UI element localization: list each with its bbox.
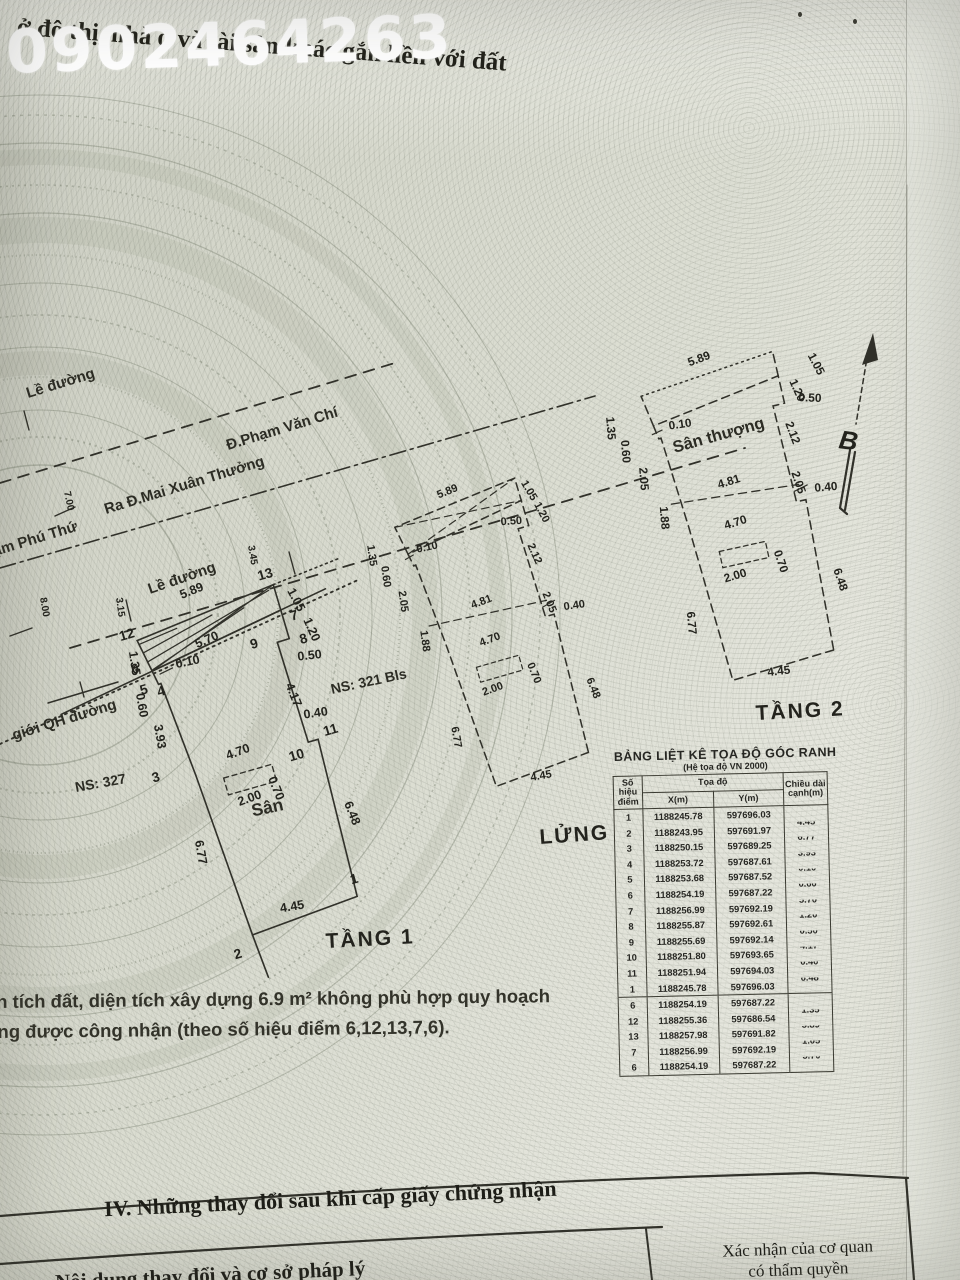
cell-y: 597696.03	[713, 806, 784, 824]
parcel-outline-tang2	[649, 376, 841, 685]
dim-label: 0.40	[563, 598, 586, 613]
cell-x: 1188251.94	[646, 964, 717, 981]
cell-length: 1.35	[788, 1009, 832, 1026]
terrace-dotted-edge	[638, 351, 776, 396]
dim-label: 2.12	[782, 419, 803, 446]
cell-point: 6	[620, 1060, 649, 1077]
north-arrow-label: B	[837, 424, 860, 456]
point-label: 11	[321, 720, 339, 739]
inner-dimension-line	[429, 593, 546, 633]
dim-label: 3.15	[113, 597, 127, 618]
change-content-label: Nội dung thay đổi và cơ sở pháp lý	[55, 1256, 366, 1280]
sliver-outline	[391, 478, 527, 556]
dong-son-drum-pattern	[0, 0, 960, 1280]
dim-label: 0.60	[618, 440, 634, 464]
road-boundary-through-6-7	[48, 589, 339, 715]
cell-y: 597694.03	[717, 962, 788, 979]
north-arrow-tail	[840, 450, 855, 514]
cell-y: 597691.97	[714, 822, 785, 839]
cell-point: 3	[615, 841, 644, 857]
cell-length: 0.10	[785, 868, 829, 885]
dimension-tick	[10, 628, 32, 636]
dim-label: 0.10	[174, 652, 201, 671]
point-label: 12	[117, 625, 136, 644]
construction-note: ện tích đất, diện tích xây dựng 6.9 m² k…	[0, 981, 586, 1046]
skylight-rect	[224, 764, 277, 795]
parcel-outline-lung	[402, 500, 595, 792]
dim-label: 1.20	[786, 377, 808, 404]
point-label: 5	[138, 681, 150, 698]
cell-x: 1188255.87	[645, 917, 716, 934]
cell-y: 597696.03	[717, 978, 788, 996]
cell-point: 5	[615, 872, 644, 888]
cell-length: 6.48	[788, 977, 832, 994]
cell-point: 7	[616, 903, 645, 919]
cell-length: 5.70	[786, 899, 830, 916]
street-edge-line-top	[0, 362, 398, 483]
dim-label: 4.45	[279, 897, 305, 915]
point-label: 4	[155, 683, 167, 700]
dim-label: 2.00	[236, 787, 264, 808]
page-fold-edge	[906, 0, 960, 1280]
certificate-photo: 13 12 6 5 4 3 2 1 7 8 9 10 11 5.89 5.70 …	[0, 0, 960, 1280]
skylight-rect	[476, 655, 523, 682]
boundary-label: giới QH đường	[10, 696, 118, 744]
street-label: Ra Đ.Mai Xuân Thưởng	[102, 453, 266, 518]
cell-length: 1.05	[789, 1040, 833, 1057]
cell-x: 1188256.99	[648, 1043, 719, 1060]
dimension-tick	[55, 507, 75, 516]
cell-x: 1188254.19	[649, 1058, 720, 1076]
dim-label: 4.45	[767, 663, 792, 680]
dimension-tick	[80, 682, 84, 697]
note-line-1: ện tích đất, diện tích xây dựng 6.9 m² k…	[0, 981, 586, 1017]
cell-y: 597692.19	[715, 900, 786, 917]
cell-x: 1188250.15	[644, 839, 715, 856]
cell-length	[788, 993, 832, 1010]
dim-label: 1.20	[300, 616, 323, 644]
dimension-tick	[24, 411, 29, 430]
dim-label: 5.89	[686, 348, 713, 369]
cell-point: 12	[618, 1013, 647, 1029]
dim-label: 0.70	[771, 548, 792, 575]
terrace-label: Sân thượng	[670, 413, 766, 457]
cell-y: 597692.19	[719, 1041, 790, 1058]
cell-point: 9	[617, 934, 646, 950]
cell-point: 1	[614, 809, 643, 826]
dim-label: 6.77	[192, 839, 210, 865]
parcel-number-label: NS: 321 Bls	[329, 665, 408, 697]
cell-length	[784, 805, 828, 822]
street-edge-line-lower	[70, 448, 745, 648]
dim-label: 1.35	[603, 416, 619, 440]
leader-arrow	[405, 521, 556, 640]
cell-length: 0.60	[786, 883, 830, 900]
dim-label: 1.05	[805, 350, 828, 377]
dim-label: 4.17	[283, 681, 305, 709]
cell-x: 1188245.78	[647, 979, 718, 997]
dim-label: 1.20	[531, 500, 552, 525]
dim-label: 1.05	[518, 478, 539, 503]
dim-label: 4.70	[478, 630, 502, 649]
cell-x: 1188254.19	[647, 995, 718, 1013]
dim-label: 1.88	[417, 630, 432, 653]
dim-label: 2.05	[788, 469, 809, 496]
dim-label: 4.81	[716, 471, 743, 491]
cell-length: 1.20	[786, 914, 830, 931]
cell-length: 5.70	[790, 1056, 834, 1073]
cell-length: 5.89	[789, 1025, 833, 1042]
dim-label: 2.05	[539, 590, 558, 614]
guilloche-texture	[0, 0, 960, 1280]
cell-length: 6.77	[785, 836, 829, 853]
dim-label: 5.70	[193, 628, 221, 651]
point-label: 7	[288, 607, 300, 624]
guilloche-texture-2	[0, 0, 960, 1280]
cell-y: 597692.61	[716, 915, 787, 932]
street-label: Đ.Phạm Văn Chí	[224, 403, 341, 453]
col-header-length: Chiều dài cạnh(m)	[783, 772, 828, 806]
cell-y: 597687.22	[715, 884, 786, 901]
parcel-number-label: NS: 327	[74, 770, 128, 795]
cell-point: 11	[617, 965, 646, 981]
planning-boundary-line	[0, 580, 358, 744]
table-row: 61188254.19597687.225.70	[620, 1056, 834, 1077]
leader-arrow	[652, 402, 808, 519]
section4-heading: IV. Những thay đổi sau khi cấp giấy chứn…	[104, 1176, 557, 1223]
dim-label: 2.05	[396, 590, 411, 613]
dim-label: 1.05	[284, 586, 308, 614]
cell-y: 597687.22	[719, 1057, 790, 1075]
dim-label: 0.40	[303, 704, 329, 721]
cell-point: 1	[618, 981, 647, 998]
ink-speck	[798, 12, 802, 17]
cell-x: 1188255.69	[646, 933, 717, 950]
cell-length: 4.45	[784, 821, 828, 838]
dim-label: 6.48	[830, 566, 851, 593]
note-line-2: ông được công nhận (theo số hiệu điểm 6,…	[0, 1010, 586, 1046]
cell-y: 597687.52	[715, 869, 786, 886]
dim-label: 2.05	[636, 467, 652, 491]
cell-y: 597691.82	[718, 1026, 789, 1043]
yard-label: Sân	[250, 794, 286, 820]
point-label: 13	[256, 565, 275, 584]
plan-title-tang1: TẦNG 1	[325, 925, 415, 953]
cell-point: 10	[617, 950, 646, 966]
cell-length: 0.40	[787, 961, 831, 978]
dim-label: 0.70	[524, 661, 543, 685]
point-label: 3	[150, 769, 162, 786]
phone-number-watermark: 0902464263	[5, 2, 455, 88]
point-label: 1	[348, 871, 360, 888]
dim-label: 0.40	[814, 479, 838, 495]
hatch-lines	[134, 585, 287, 673]
cell-x: 1188245.78	[643, 807, 714, 825]
dim-label: 0.50	[297, 647, 323, 663]
boundary-segment	[48, 682, 118, 703]
photo-vignette	[0, 0, 960, 1280]
street-label: Lề đường	[24, 365, 97, 402]
dimension-tick	[126, 600, 131, 621]
dim-label: 2.00	[722, 565, 748, 585]
dim-label: 0.70	[265, 774, 287, 802]
cell-x: 1188253.72	[644, 855, 715, 872]
point-label: 10	[287, 746, 306, 765]
cadastral-drawing: 13 12 6 5 4 3 2 1 7 8 9 10 11 5.89 5.70 …	[0, 0, 960, 1280]
dim-label: 7.00	[61, 490, 76, 512]
cell-x: 1188243.95	[643, 823, 714, 840]
cross-diagonals	[391, 478, 527, 556]
dim-label: 5.89	[178, 580, 206, 602]
skylight-rect	[719, 541, 769, 567]
dim-label: 4.45	[530, 768, 553, 784]
dim-label: 0.10	[668, 415, 693, 432]
cell-x: 1188257.98	[648, 1027, 719, 1044]
dim-label: 1.35	[126, 650, 143, 676]
cell-y: 597692.14	[716, 931, 787, 948]
cell-y: 597686.54	[718, 1010, 789, 1027]
dim-label: 6.77	[448, 726, 464, 749]
point-label: 2	[232, 946, 244, 963]
authority-confirmation-cell: Xác nhận của cơ quan có thẩm quyền	[667, 1233, 928, 1280]
leader-arrow	[159, 668, 173, 674]
dim-label: 6.48	[341, 799, 363, 827]
dim-label: 2.00	[481, 680, 505, 699]
dim-label: 5.89	[435, 482, 459, 501]
inner-dimension-line	[671, 476, 798, 512]
coordinate-table: Số hiệu điểm Tọa độ Chiều dài cạnh(m) X(…	[613, 771, 835, 1077]
street-label: Đ.Phạm Phú Thứ	[0, 518, 80, 570]
cell-y: 597687.61	[714, 853, 785, 870]
dim-label: 4.81	[469, 593, 493, 612]
cell-point: 4	[615, 856, 644, 872]
dim-label: 8.00	[37, 597, 51, 619]
cell-x: 1188255.36	[647, 1012, 718, 1029]
north-arrow-shaft	[856, 352, 868, 424]
dim-label: 0.60	[133, 692, 151, 718]
dim-label: 1.35	[364, 544, 379, 567]
dim-label: 4.70	[224, 741, 252, 762]
cell-point: 2	[614, 825, 643, 841]
parcel-outline-tang1	[146, 610, 365, 942]
col-header-x: X(m)	[642, 791, 713, 809]
cell-x: 1188253.68	[644, 870, 715, 887]
dotted-extension	[271, 558, 340, 584]
col-header-point: Số hiệu điểm	[613, 776, 643, 810]
boundary-extension	[253, 934, 269, 978]
cell-length: 3.93	[785, 852, 829, 869]
dim-label: 3.93	[151, 723, 169, 749]
plan-title-tang2: TẦNG 2	[755, 697, 845, 725]
dim-label: 6.48	[584, 676, 603, 700]
dim-label: 0.60	[378, 565, 393, 588]
plan-title-lung: LỬNG	[539, 820, 610, 849]
dim-label: 1.88	[657, 506, 673, 530]
street-centerline	[0, 396, 595, 568]
cell-length: 0.50	[787, 930, 831, 947]
dim-label: 0.50	[500, 515, 522, 528]
point-label: 6	[129, 660, 141, 677]
cell-point: 7	[619, 1044, 648, 1060]
dimension-tick	[289, 552, 295, 574]
cell-point: 8	[616, 919, 645, 935]
coordinate-table-block: BẢNG LIỆT KÊ TỌA ĐỘ GÓC RANH (Hệ tọa độ …	[612, 745, 845, 1077]
table-divider-vertical	[646, 1229, 652, 1280]
point-label: 9	[248, 635, 260, 652]
cell-point: 6	[618, 997, 647, 1014]
cell-x: 1188256.99	[645, 901, 716, 918]
cell-y: 597693.65	[717, 947, 788, 964]
dim-label: 6.77	[684, 611, 700, 636]
cell-x: 1188251.80	[646, 948, 717, 965]
cell-length: 4.17	[787, 946, 831, 963]
point-label: 8	[298, 630, 310, 647]
dim-label: 0.50	[798, 390, 822, 405]
street-label: Lề đường	[146, 559, 218, 598]
north-arrow	[840, 333, 878, 514]
dim-label: 0.10	[415, 539, 438, 555]
cell-x: 1188254.19	[645, 886, 716, 903]
sliver-sides	[638, 351, 783, 427]
cell-y: 597687.22	[718, 994, 789, 1012]
dim-label: 3.45	[245, 545, 259, 567]
cell-y: 597689.25	[714, 837, 785, 854]
dim-label: 4.70	[722, 512, 749, 532]
col-header-y: Y(m)	[713, 789, 784, 807]
ink-speck	[853, 19, 857, 24]
cell-point: 6	[616, 887, 645, 903]
setback-sliver-outline	[133, 585, 288, 673]
cell-point: 13	[619, 1029, 648, 1045]
dim-label: 2.12	[524, 542, 544, 566]
north-arrow-head	[862, 333, 878, 365]
